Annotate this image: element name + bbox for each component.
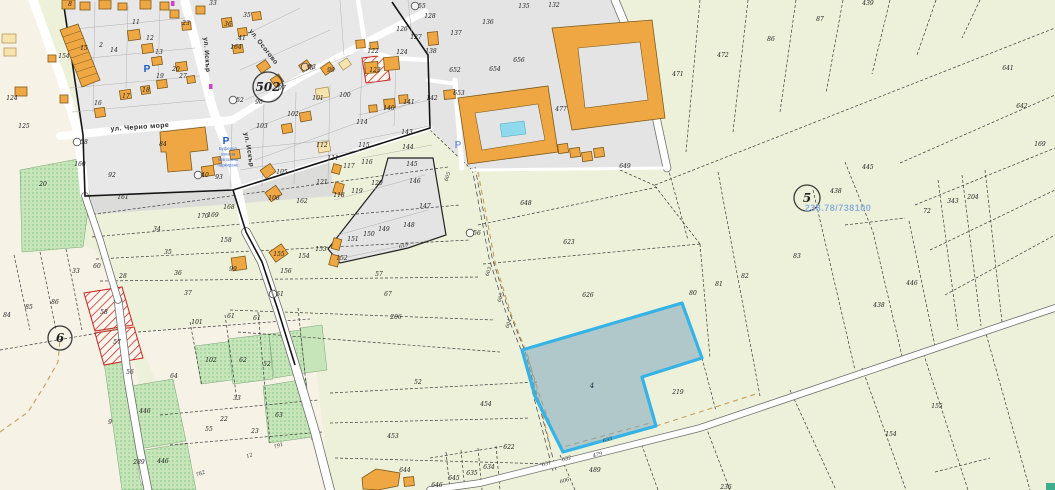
parcel-label: 146 [409, 178, 421, 185]
parcel-label: 119 [351, 188, 363, 195]
parcel-label: 81 [715, 281, 723, 288]
parcel-label: 85 [25, 304, 33, 311]
parcel-label: 23 [250, 428, 259, 435]
parcel-label: 56 [126, 369, 134, 376]
parcel-label: 16 [94, 100, 102, 107]
parcel-label: 92 [108, 172, 116, 179]
parcel-label: 162 [296, 198, 308, 205]
parcel-label: 20 [171, 66, 180, 73]
parking-note-line: паркиране [218, 163, 240, 168]
parcel-label: 33 [72, 268, 80, 275]
parcel-label: 101 [191, 319, 202, 326]
parcel-label: 100 [339, 92, 351, 99]
parcel-label: 646 [431, 482, 443, 489]
parcel-label: 446 [156, 458, 169, 465]
parcel-label: 136 [482, 19, 494, 26]
parcel-label: 154 [298, 253, 310, 260]
parcel-label: 41 [237, 35, 246, 42]
parcel-label: 169 [207, 212, 219, 219]
zone-circle-label: 502 [255, 80, 280, 94]
parcel-label: 36 [224, 21, 232, 28]
parcel-label: 472 [716, 52, 729, 59]
parcel-label: 152 [336, 255, 348, 262]
parcel-label: 124 [6, 95, 18, 102]
parcel-label: 150 [363, 231, 375, 238]
parcel-label: 132 [548, 2, 560, 9]
parcel-label: 153 [315, 246, 327, 253]
parcel-label: 118 [333, 192, 345, 199]
parcel-label: 151 [347, 236, 358, 243]
survey-node-label: 52 [236, 97, 244, 104]
parcel-label: 61 [253, 315, 261, 322]
parcel-label: 453 [386, 433, 399, 440]
parcel-label: 622 [503, 444, 515, 451]
parking-icon: P [144, 64, 151, 75]
parcel-label: 170 [197, 213, 209, 220]
parcel-label: 9 [108, 419, 112, 426]
parcel-label: 161 [117, 194, 128, 201]
parcel-label: 122 [367, 48, 379, 55]
poi-icon [171, 1, 175, 6]
parcel-label: 147 [419, 203, 431, 210]
parcel-label: 289 [132, 459, 145, 466]
parcel-label: 477 [554, 106, 567, 113]
parcel-label: 67 [384, 291, 392, 298]
parcel-label: 63 [275, 412, 283, 419]
parcel-label: 124 [396, 49, 408, 56]
parcel-label: 155 [931, 403, 943, 410]
parcel-label: 12 [146, 35, 154, 42]
parcel-label: 86 [767, 36, 775, 43]
cadastral-map-viewport[interactable]: 5352405661555881112131415233335364116419… [0, 0, 1055, 490]
parcel-label: 87 [816, 16, 824, 23]
parcel-label: 105 [276, 169, 288, 176]
parcel-label: 15 [80, 45, 88, 52]
parcel-label: 454 [479, 401, 492, 408]
parcel-label: 446 [905, 280, 918, 287]
parcel-label: 656 [513, 57, 525, 64]
parcel-label: 164 [230, 44, 242, 51]
parcel-label: 14 [110, 47, 118, 54]
parcel-label: 140 [383, 105, 395, 112]
parcel-label: 438 [872, 302, 885, 309]
parcel-label: 99 [327, 67, 335, 74]
survey-node-label: 55 [418, 3, 426, 10]
parcel-label: 438 [829, 188, 842, 195]
parcel-label: 126 [396, 26, 408, 33]
parcel-label: 649 [619, 163, 631, 170]
parcel-label: 28 [118, 273, 127, 280]
parcel-label: 623 [563, 239, 575, 246]
parcel-label: 114 [356, 119, 368, 126]
parcel-label: 84 [159, 141, 167, 148]
parcel-label: 86 [51, 299, 59, 306]
parcel-label: 111 [327, 155, 338, 162]
parcel-label: 117 [343, 163, 355, 170]
parcel-label: 645 [448, 475, 460, 482]
parcel-label: 206 [389, 314, 402, 321]
parcel-label: 489 [588, 467, 601, 474]
parcel-label: 84 [3, 312, 11, 319]
parcel-label: 154 [885, 431, 897, 438]
parcel-label: 127 [410, 34, 422, 41]
parcel-label: 64 [170, 373, 178, 380]
parcel-label: 135 [518, 3, 530, 10]
parcel-label: 446 [138, 408, 151, 415]
parcel-label: 642 [1016, 103, 1028, 110]
parking-note-line: безплатно [218, 157, 239, 162]
swimming-pool [500, 121, 526, 137]
parcel-label: 123 [369, 67, 381, 74]
parcel-label: 653 [453, 90, 465, 97]
parcel-label: 654 [489, 66, 501, 73]
parcel-label: 641 [1002, 65, 1013, 72]
parcel-label: 57 [375, 271, 383, 278]
survey-node-label: 58 [80, 139, 88, 146]
survey-node-label: 40 [200, 172, 209, 179]
survey-node-label: 56 [473, 230, 481, 237]
parcel-label: 160 [74, 161, 86, 168]
parcel-label: 20 [38, 181, 47, 188]
parcel-label: 27 [178, 73, 187, 80]
parcel-label: 148 [403, 222, 415, 229]
parcel-label: 145 [406, 161, 418, 168]
parcel-label: 343 [947, 198, 959, 205]
parcel-label: 61 [227, 313, 235, 320]
parcel-label: 648 [520, 200, 532, 207]
poi-icon [209, 84, 213, 89]
parking-note-line: Буферна [219, 146, 238, 151]
parking-icon: P [455, 140, 462, 151]
parcel-label: 82 [741, 273, 749, 280]
parking-note-line: зона за [221, 152, 236, 157]
parcel-label: 652 [449, 67, 461, 74]
parcel-label: 137 [450, 30, 462, 37]
parcel-label: 55 [205, 426, 213, 433]
parcel-label: 17 [122, 93, 130, 100]
parcel-label: 34 [153, 226, 161, 233]
parcel-label: 19 [156, 73, 164, 80]
parcel-label: 168 [223, 204, 235, 211]
parcel-label: 60 [93, 263, 101, 270]
zone-circle-label: 6 [56, 331, 65, 345]
parcel-label: 236 [719, 484, 732, 490]
parcel-label: 120 [371, 180, 383, 187]
parcel-label: 439 [861, 0, 874, 7]
parcel-label: 116 [361, 159, 373, 166]
parcel-label: 22 [219, 416, 228, 423]
parcel-label: 101 [312, 95, 323, 102]
parcel-label: 644 [399, 467, 411, 474]
parcel-label: 11 [132, 19, 140, 26]
survey-node-label: 61 [276, 291, 284, 298]
parcel-label: 55 [306, 65, 314, 72]
parcel-label: 106 [268, 195, 280, 202]
parcel-label: 8 [68, 1, 72, 8]
parcel-label: 142 [426, 95, 438, 102]
parcel-label: 112 [316, 142, 328, 149]
teal-patch [1046, 483, 1055, 490]
parcel-label: 33 [209, 0, 217, 7]
parcel-label: 626 [582, 292, 594, 299]
parcel-label: 33 [233, 395, 241, 402]
parcel-label: 57 [113, 339, 121, 346]
parcel-label: 2 [98, 42, 103, 49]
parcel-label: 635 [466, 470, 478, 477]
parcel-label: 103 [256, 123, 268, 130]
parcel-label: 445 [861, 164, 874, 171]
parcel-label: 52 [263, 361, 271, 368]
parcel-label: 36 [174, 270, 182, 277]
parking-note: Буферна зона за безплатно паркиране [218, 146, 240, 168]
parcel-label: 471 [671, 71, 683, 78]
parcel-label: 115 [358, 142, 370, 149]
parcel-label: 155 [273, 251, 285, 258]
selected-parcel-label: 4 [589, 382, 594, 390]
parcel-label: 634 [483, 464, 495, 471]
parcel-label: 138 [425, 48, 437, 55]
parcel-label: 37 [184, 290, 192, 297]
parcel-label: 158 [220, 237, 232, 244]
parcel-label: 99 [229, 266, 237, 273]
parcel-label: 141 [403, 99, 414, 106]
parcel-label: 93 [215, 174, 223, 181]
parcel-label: 58 [100, 309, 108, 316]
cadastral-map[interactable]: 5352405661555881112131415233335364116419… [0, 0, 1055, 490]
parcel-label: 219 [671, 389, 684, 396]
parcel-label: 169 [1034, 141, 1046, 148]
parcel-label: 35 [164, 249, 172, 256]
parcel-label: 13 [155, 49, 163, 56]
parcel-label: 18 [142, 87, 150, 94]
parcel-label: 156 [280, 268, 292, 275]
parcel-label: 125 [18, 123, 30, 130]
parcel-label: 72 [923, 208, 931, 215]
parcel-label: 102 [287, 111, 299, 118]
parcel-label: 23 [181, 20, 190, 27]
parcel-label: 143 [401, 129, 413, 136]
parcel-label: 121 [316, 179, 327, 186]
parcel-label: 154 [58, 53, 70, 60]
parcel-label: 62 [239, 357, 247, 364]
parcel-label: 52 [414, 379, 422, 386]
parcel-label: 128 [424, 13, 436, 20]
parcel-label: 83 [793, 253, 801, 260]
parcel-label: 102 [205, 357, 217, 364]
parcel-label: 149 [378, 226, 390, 233]
parcel-label: 80 [689, 290, 697, 297]
parcel-label: 204 [966, 194, 979, 201]
parcel-label: 144 [402, 144, 414, 151]
parcel-label: 35 [243, 12, 251, 19]
cadastre-ref-note: 238.78/738100 [805, 203, 872, 213]
